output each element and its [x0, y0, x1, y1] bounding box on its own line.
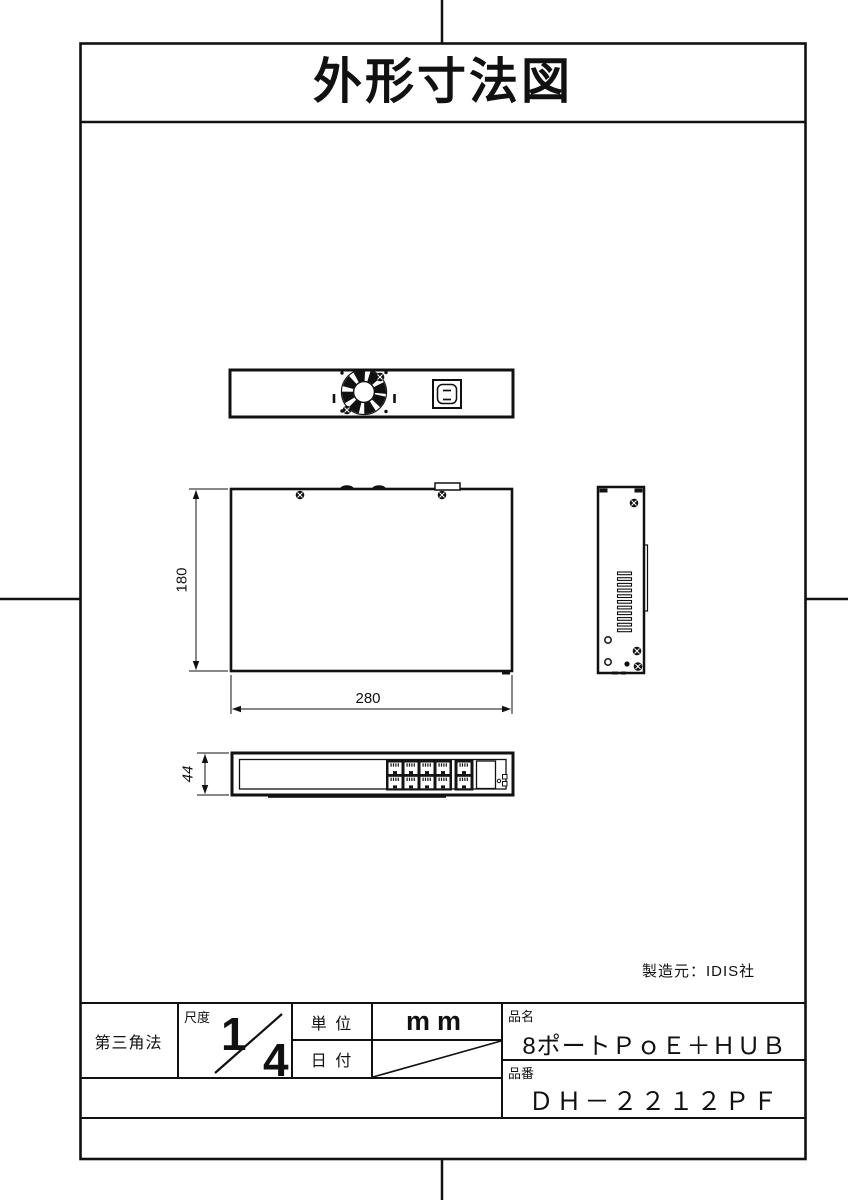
mount-hole — [605, 637, 611, 643]
screw-icon — [633, 647, 642, 656]
screw-icon — [296, 491, 305, 500]
scale-label: 尺度 — [184, 1007, 210, 1026]
screw-icon — [438, 491, 447, 500]
drawing-sheet: 180 280 — [0, 0, 848, 1200]
projection-method-cell: 第三角法 — [79, 1003, 178, 1078]
rear-view — [230, 369, 513, 417]
power-inlet-icon — [433, 380, 461, 408]
dimension-depth-value: 180 — [174, 567, 191, 592]
product-name-value: 8ポートＰｏＥ＋ＨＵＢ — [502, 1026, 807, 1061]
dimension-height-value: 44 — [180, 766, 197, 783]
screw-icon — [343, 406, 352, 415]
side-view — [598, 487, 648, 675]
product-name-label: 品名 — [508, 1006, 534, 1025]
top-view — [231, 483, 512, 675]
scale-denominator: 4 — [263, 1037, 289, 1083]
unit-label: 単 位 — [292, 1003, 372, 1040]
inlet-tab — [435, 483, 460, 490]
front-base-lip — [268, 795, 446, 798]
screw-icon — [376, 373, 385, 382]
dimension-height — [197, 753, 229, 795]
scale-numerator: 1 — [221, 1011, 247, 1057]
unit-value: mm — [372, 1003, 502, 1040]
foot-mark — [502, 672, 510, 675]
front-view — [232, 753, 513, 798]
screw-icon — [634, 662, 643, 671]
part-number-value: ＤＨ－２２１２ＰＦ — [502, 1082, 807, 1118]
uplink-ports-icon — [455, 760, 474, 791]
blank-slot — [477, 761, 496, 789]
page-title: 外形寸法図 — [80, 50, 806, 114]
date-label: 日 付 — [292, 1040, 372, 1078]
manufacturer-note: 製造元：IDIS社 — [642, 960, 755, 981]
part-number-label: 品番 — [508, 1063, 534, 1082]
screw-icon — [624, 661, 629, 666]
rj45-ports-icon — [386, 760, 452, 791]
mount-hole — [605, 659, 611, 665]
date-blank-slash — [373, 1041, 501, 1077]
screw-icon — [630, 499, 639, 508]
dimension-depth — [189, 489, 228, 671]
dimension-width-value: 280 — [355, 690, 380, 707]
